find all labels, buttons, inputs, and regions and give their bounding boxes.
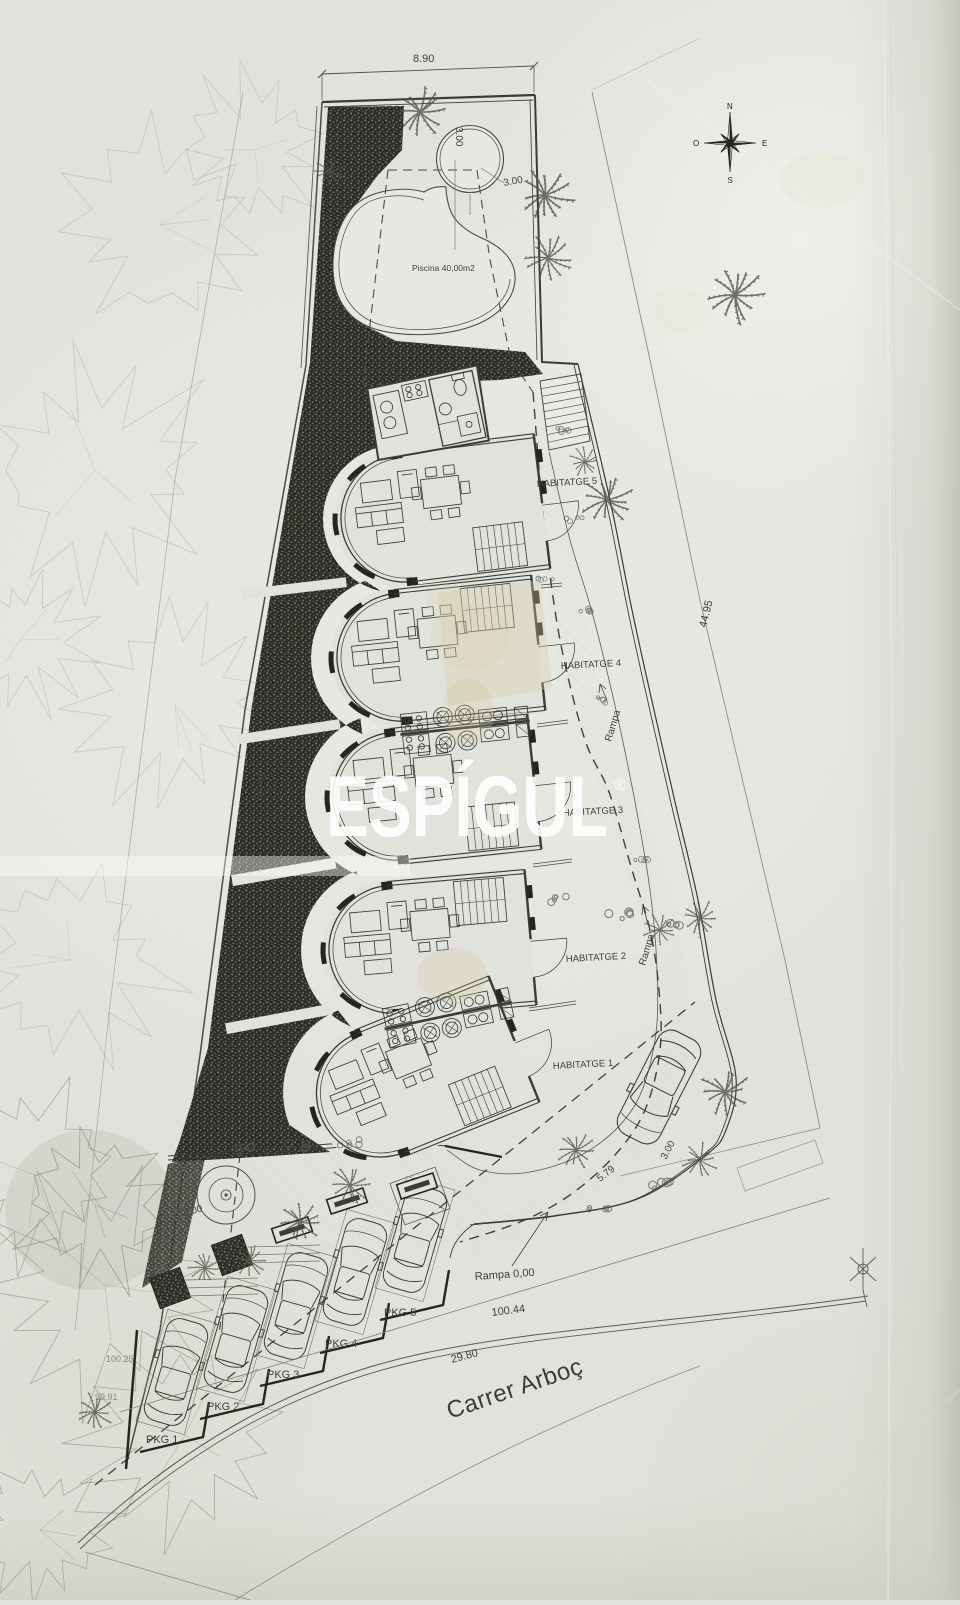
svg-text:PKG 3: PKG 3 [267,1369,299,1381]
svg-text:E: E [762,139,767,148]
svg-text:PKG 2: PKG 2 [207,1401,239,1413]
svg-text:100.25: 100.25 [106,1354,134,1364]
svg-text:ESPÍGUL: ESPÍGUL [326,759,608,855]
svg-text:PKG 5: PKG 5 [384,1307,416,1319]
svg-text:3.00: 3.00 [453,127,464,147]
svg-text:N: N [727,102,733,111]
svg-text:®: ® [614,777,626,794]
svg-text:99.91: 99.91 [95,1392,118,1402]
svg-text:O: O [693,139,699,148]
svg-text:S: S [728,176,733,185]
svg-text:PKG 4: PKG 4 [325,1338,357,1350]
svg-text:PKG 1: PKG 1 [146,1434,178,1446]
svg-text:Piscina 40,00m2: Piscina 40,00m2 [412,263,475,273]
svg-text:8.90: 8.90 [413,53,434,65]
